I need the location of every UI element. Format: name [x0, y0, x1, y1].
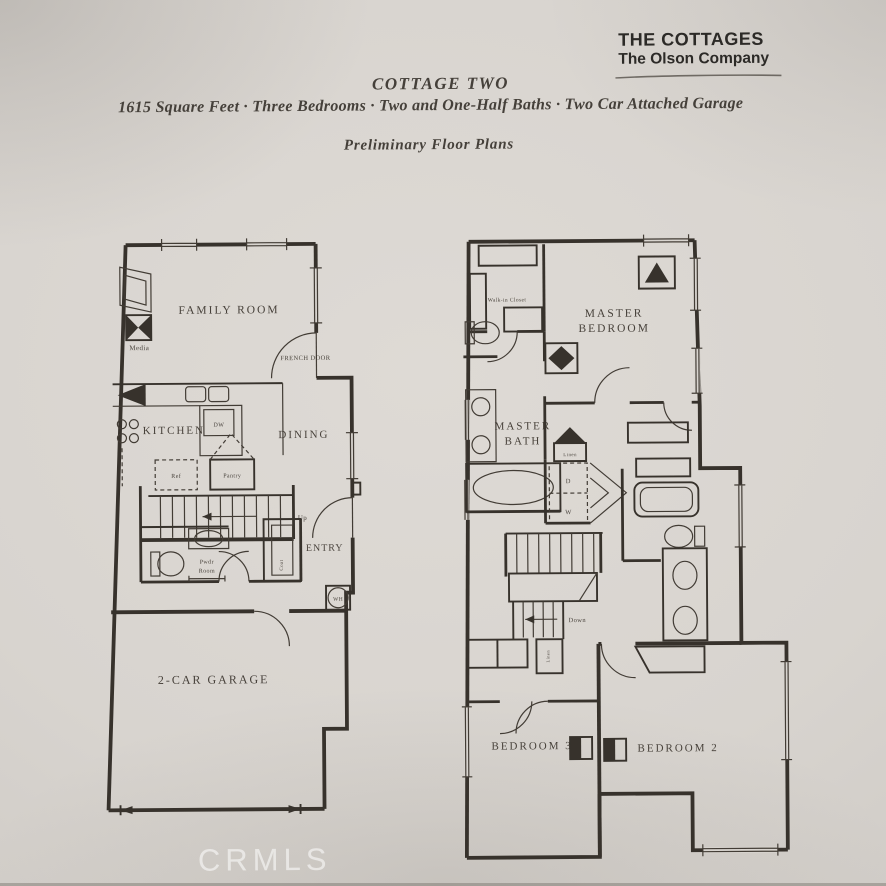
linen-upper-label: Linen — [563, 453, 577, 458]
brand-name: THE COTTAGES — [618, 29, 769, 51]
front-door-arc — [312, 498, 352, 538]
family-room-label: FAMILY ROOM — [179, 304, 280, 317]
garage-label: 2-CAR GARAGE — [158, 672, 270, 687]
master-bedroom-label-2: BEDROOM — [578, 323, 650, 335]
master-bedroom-label-1: MASTER — [585, 308, 644, 320]
bedroom3-door-arcs — [466, 701, 599, 734]
linen-lower-label: Linen — [545, 650, 550, 663]
refrigerator-label: Ref — [171, 473, 181, 480]
first-floor-plan: Media FAMILY ROOM FRENCH DOOR DW — [87, 232, 383, 834]
page-title: COTTAGE TWO — [0, 71, 884, 97]
bedroom2-label: BEDROOM 2 — [637, 742, 718, 755]
plan-specs: 1615 Square Feet · Three Bedrooms · Two … — [0, 94, 874, 118]
media-niche-icon — [126, 315, 151, 340]
dishwasher-label: DW — [213, 423, 224, 429]
powder-hall-door-arcs — [219, 551, 249, 581]
powder-label-1: Pwdr — [200, 560, 214, 566]
coat-label: Coat — [280, 559, 285, 570]
brand-company: The Olson Company — [618, 49, 769, 68]
hall-toilet-icon — [665, 525, 705, 547]
skylight-icon — [545, 343, 577, 373]
hall-vanity-sinks — [663, 548, 708, 640]
dining-label: DINING — [278, 429, 329, 441]
page-content: THE COTTAGES The Olson Company COTTAGE T… — [0, 0, 886, 886]
bedroom3-closet-hatch — [467, 639, 527, 667]
dryer-label: D — [566, 478, 571, 485]
stairs-up — [140, 485, 294, 582]
walkin-closet-label: Walk-in Closet — [488, 297, 527, 303]
water-heater-label: WH — [333, 597, 343, 603]
toilet-icon — [151, 552, 184, 576]
bedroom3-label: BEDROOM 3 — [491, 740, 572, 753]
title-block: COTTAGE TWO 1615 Square Feet · Three Bed… — [0, 71, 884, 157]
hall-tub-icon — [634, 482, 698, 516]
stairs-down — [506, 533, 604, 640]
washer-label: W — [565, 509, 572, 516]
brand-block: THE COTTAGES The Olson Company — [618, 29, 769, 69]
scanned-floor-plan-page: THE COTTAGES The Olson Company COTTAGE T… — [0, 0, 886, 886]
media-label: Media — [129, 344, 149, 352]
second-floor-plan: Walk-in Closet MASTER BEDROOM — [449, 230, 793, 872]
master-bath-label-1: MASTER — [495, 420, 552, 432]
garage-walls — [111, 611, 347, 816]
kitchen-label: KITCHEN — [143, 425, 205, 437]
hall-bath — [622, 422, 708, 641]
master-bath-label-2: BATH — [505, 435, 542, 447]
french-door-label: FRENCH DOOR — [280, 355, 330, 362]
entry-label: ENTRY — [306, 543, 344, 554]
crmls-watermark: CRMLS — [198, 842, 332, 879]
plan-note: Preliminary Floor Plans — [0, 134, 872, 157]
ceiling-fan-icon — [639, 256, 675, 288]
pantry-label: Pantry — [223, 473, 241, 479]
powder-label-2: Room — [199, 569, 215, 575]
down-label: Down — [568, 617, 586, 624]
